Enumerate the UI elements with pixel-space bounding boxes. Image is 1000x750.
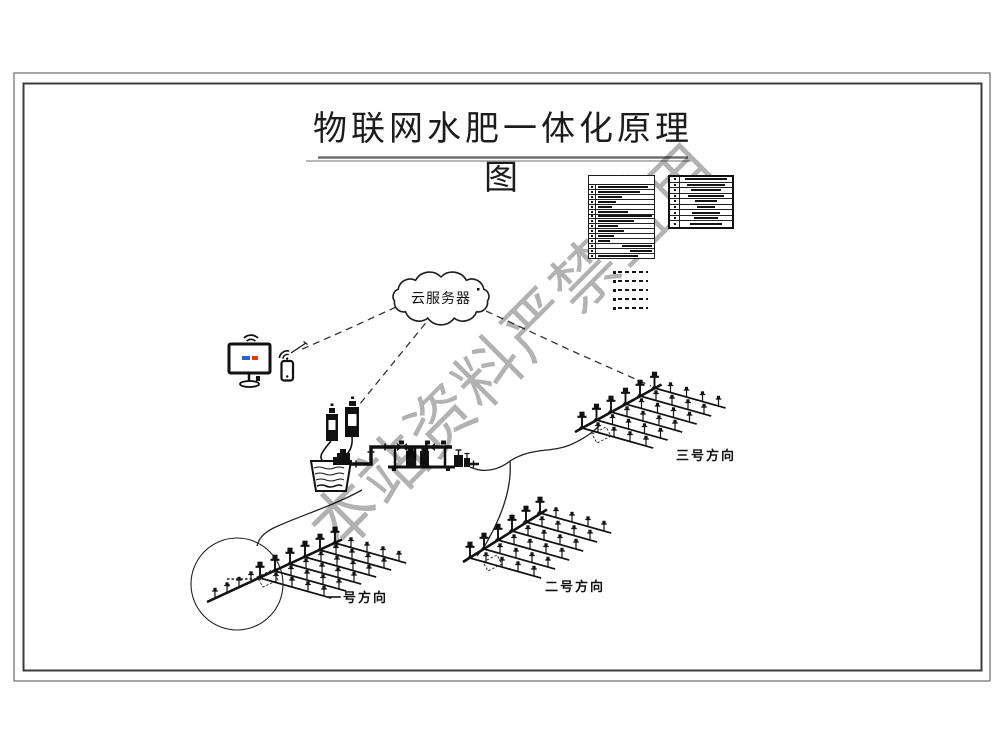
legend-table-main (588, 175, 655, 259)
drawing-page: 物联网水肥一体化原理图 云服务器 图例 一号方向 二号方向 三号方向 本站资料严… (0, 0, 1000, 750)
irrigation-grids (207, 372, 726, 602)
water-basin (311, 461, 351, 491)
line-type-sample (618, 298, 648, 300)
screen-red-bar (252, 356, 258, 360)
phone-terminal (278, 342, 308, 381)
fertigation-equipment (311, 397, 479, 492)
legend-table-header-row (589, 176, 654, 185)
fertilizer-tank-b (345, 397, 359, 438)
field-supply-lines (257, 425, 600, 556)
monitor-terminal (229, 335, 270, 387)
field-grid (575, 372, 726, 448)
cloud-server-label: 云服务器 (396, 288, 486, 308)
valve-cluster (454, 450, 479, 468)
filter-canister (420, 451, 429, 466)
fertilizer-tank-a (326, 404, 338, 442)
field2-label: 二号方向 (545, 576, 605, 595)
legend-table-secondary (668, 175, 734, 229)
supply-line-field3 (470, 425, 600, 470)
link-cloud-to-terminals (298, 307, 396, 351)
wireless-links (298, 307, 651, 405)
line-type-sample (618, 280, 648, 282)
fertigation-machine (388, 441, 455, 472)
line-type-sample (618, 271, 648, 273)
line-type-sample (618, 307, 648, 309)
valve-symbols (257, 427, 611, 587)
line-type-sample (618, 289, 648, 291)
field3-label: 三号方向 (676, 445, 736, 464)
link-cloud-to-field3 (486, 311, 651, 386)
tank-hose-a (321, 441, 331, 462)
link-cloud-to-controller (359, 314, 433, 405)
monitor-wifi-icon (244, 335, 258, 338)
legend-row (589, 254, 654, 259)
water-pump (333, 449, 350, 465)
line-type-samples (618, 271, 648, 316)
field1-label: 一号方向 (328, 587, 388, 606)
legend-row (670, 221, 732, 227)
supply-line-field1 (257, 490, 362, 546)
detail-callout (191, 538, 283, 630)
screen-blue-bar (242, 356, 250, 360)
filter-canister (406, 451, 415, 466)
